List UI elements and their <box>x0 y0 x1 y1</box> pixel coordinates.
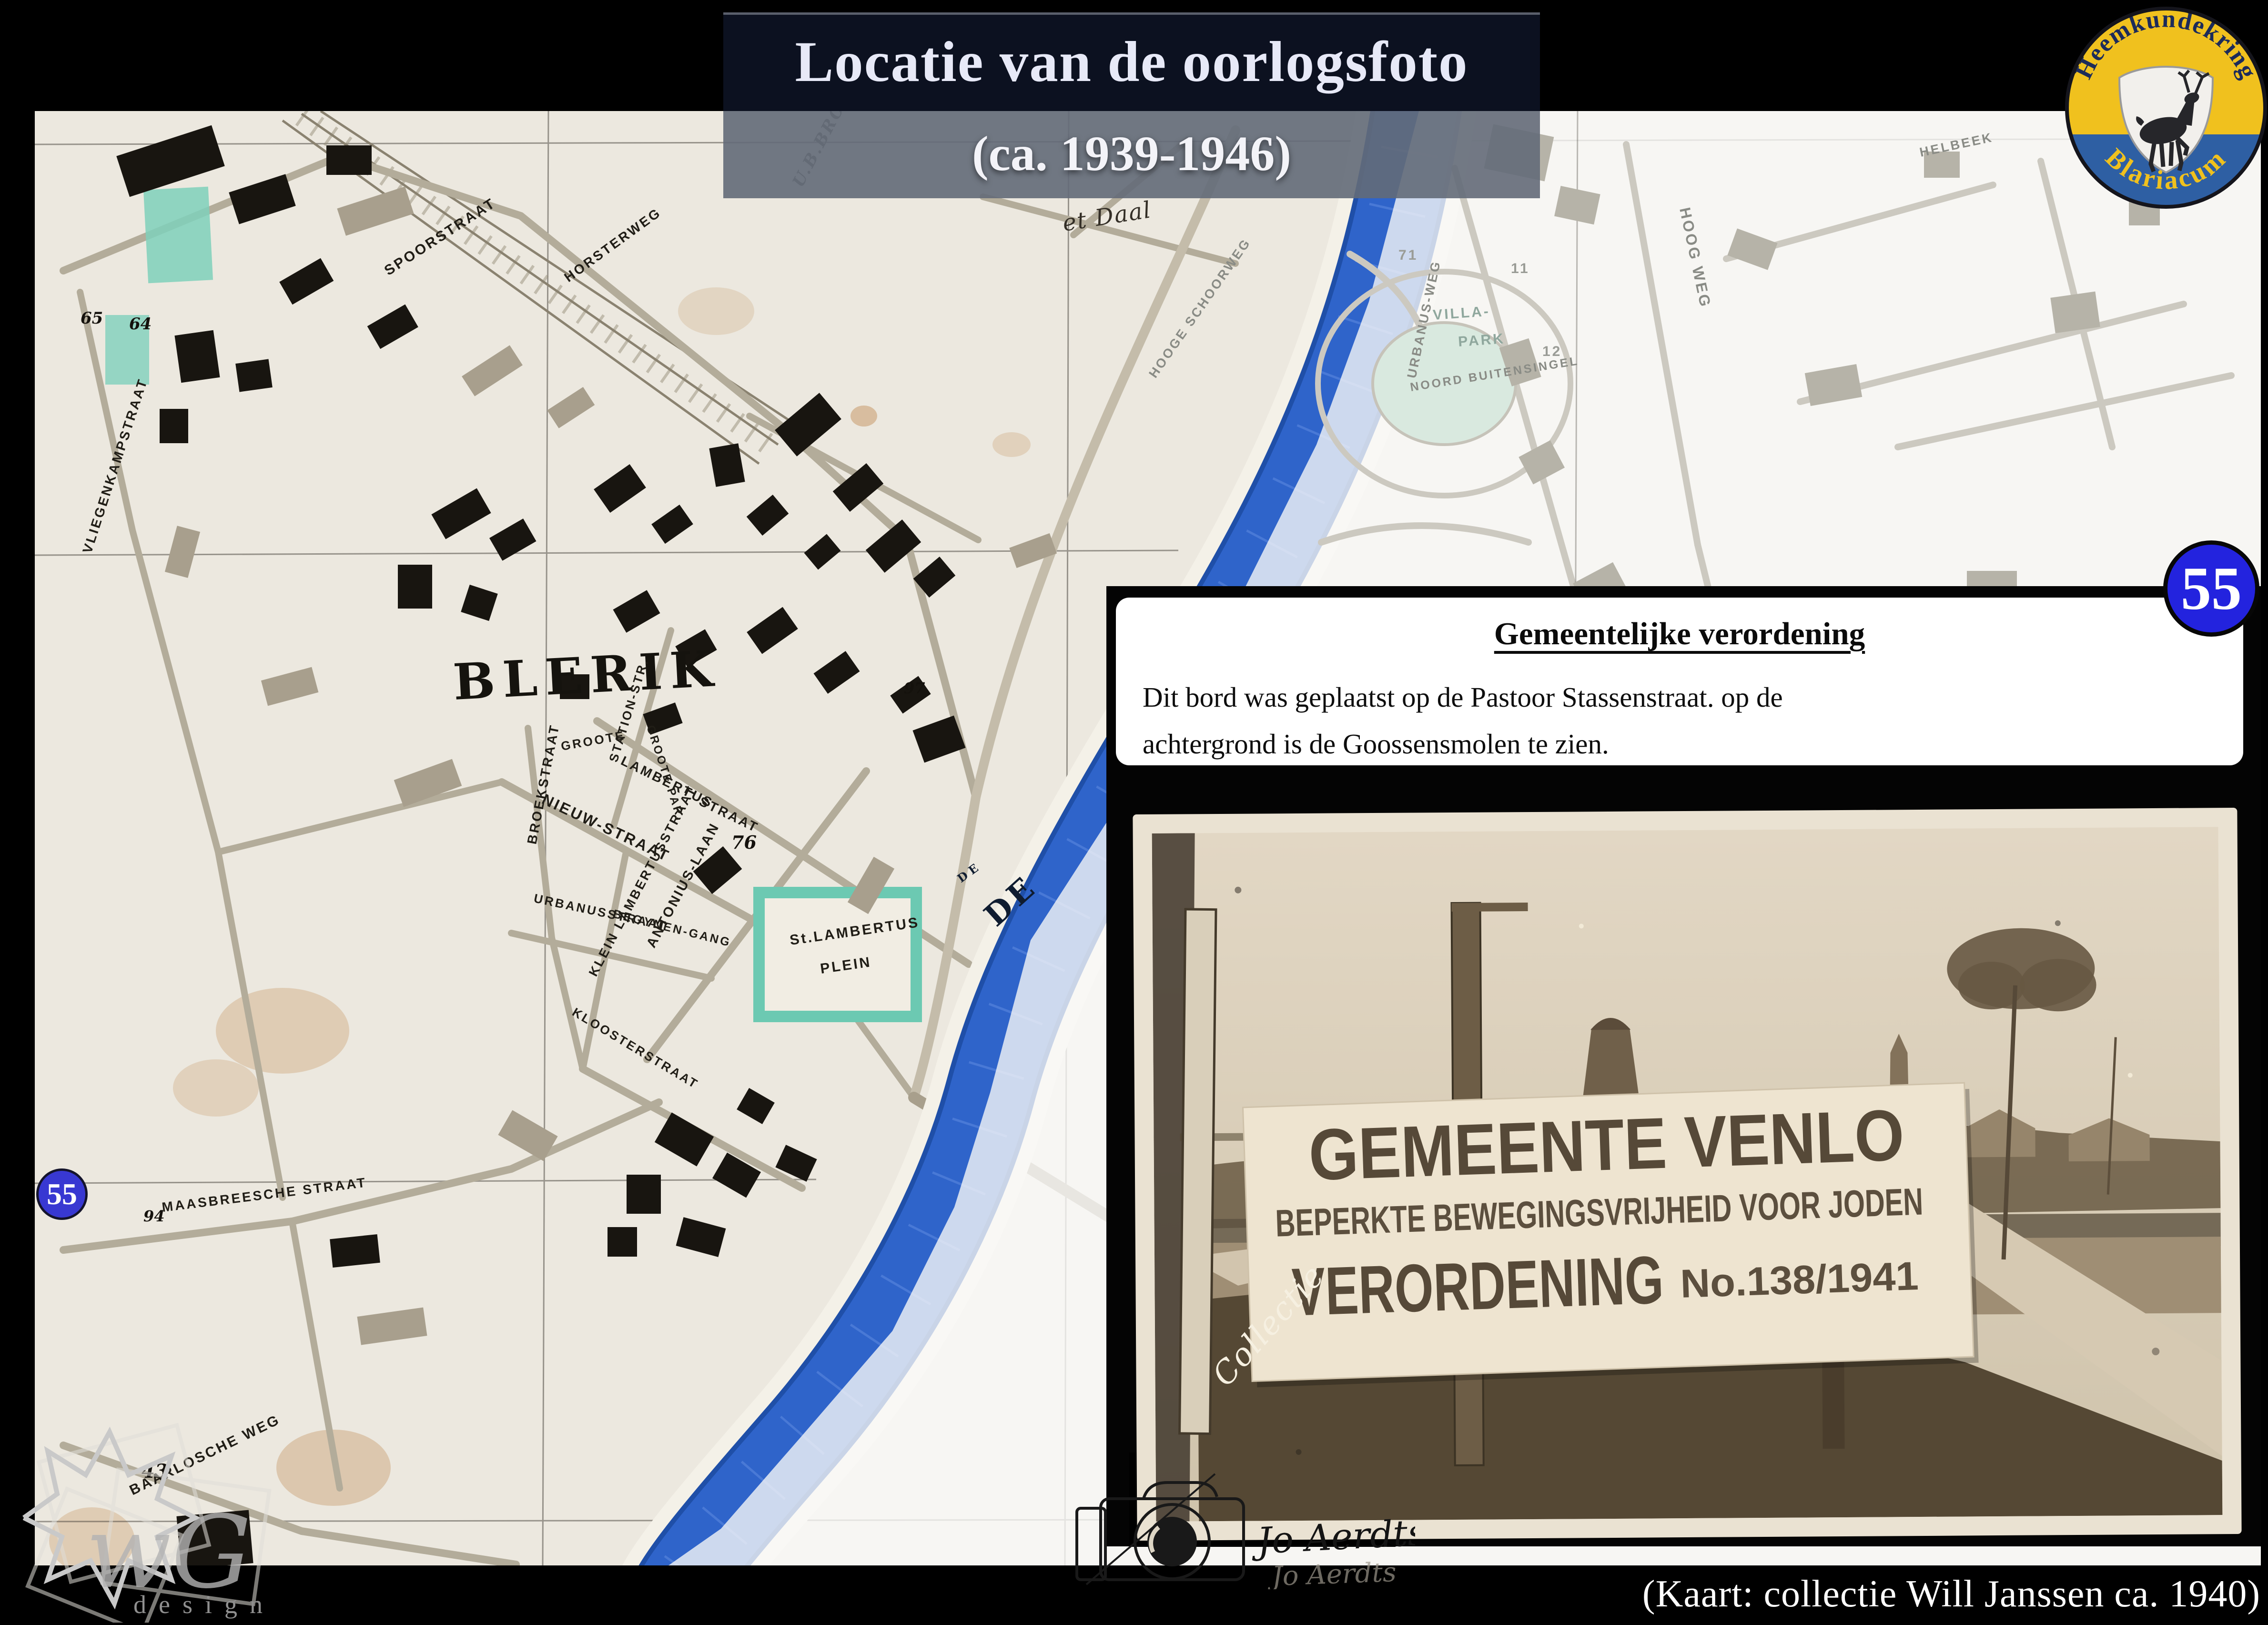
slide: { "title": {"line1": "Locatie van de oor… <box>0 0 2268 1625</box>
map-label: 97 <box>904 679 925 697</box>
sign-line3b: No.138/1941 <box>1680 1253 1919 1306</box>
map-location-badge: 55 <box>36 1168 88 1220</box>
map-label: 12 <box>1542 344 1562 359</box>
credit-name: Jo Aerdts <box>1250 1511 1415 1563</box>
watermark-word: design <box>133 1590 275 1619</box>
war-photo-image: GEMEENTE VENLO BEPERKTE BEWEGINGSVRIJHEI… <box>1152 827 2223 1522</box>
war-photo: GEMEENTE VENLO BEPERKTE BEWEGINGSVRIJHEI… <box>1133 808 2241 1541</box>
map-label: 64 <box>129 315 152 334</box>
slide-title: Locatie van de oorlogsfoto <box>723 15 1540 109</box>
map-source-caption: (Kaart: collectie Will Janssen ca. 1940) <box>1642 1573 2260 1616</box>
map-label: 65 <box>81 309 103 328</box>
photo-number-badge: 55 <box>2163 540 2259 637</box>
photographer-credit: Jo Aerdts Jo Aerdts <box>1072 1465 1415 1589</box>
sign-line3: VERORDENING <box>1291 1242 1665 1330</box>
map-label: 76 <box>731 832 757 853</box>
slide-subtitle-box: (ca. 1939-1946) <box>723 111 1540 198</box>
info-text-line2: achtergrond is de Goossensmolen te zien. <box>1143 724 2243 764</box>
info-text-line1: Dit bord was geplaatst op de Pastoor Sta… <box>1143 677 2243 717</box>
map-label: PARK <box>1458 331 1506 350</box>
verordening-sign: GEMEENTE VENLO BEPERKTE BEWEGINGSVRIJHEI… <box>1243 1083 1978 1388</box>
slide-subtitle: (ca. 1939-1946) <box>723 111 1540 197</box>
photo-number: 55 <box>2181 554 2242 624</box>
designer-watermark: wG design <box>14 1422 348 1623</box>
info-heading: Gemeentelijke verordening <box>1116 616 2243 652</box>
info-box: Gemeentelijke verordening Dit bord was g… <box>1116 598 2243 765</box>
map-label: 11 <box>1511 261 1530 276</box>
map-label: 94 <box>143 1207 165 1225</box>
heemkundekring-blariacum-logo: Heemkundekring Blariacum <box>2064 6 2268 210</box>
map-location-number: 55 <box>47 1177 77 1212</box>
map-label: 71 <box>1398 247 1418 263</box>
slide-title-box: Locatie van de oorlogsfoto <box>723 12 1540 111</box>
credit-name-ghost: Jo Aerdts <box>1266 1557 1397 1589</box>
st-lambertus-plein <box>759 893 916 1016</box>
camera-lens <box>1147 1517 1197 1566</box>
